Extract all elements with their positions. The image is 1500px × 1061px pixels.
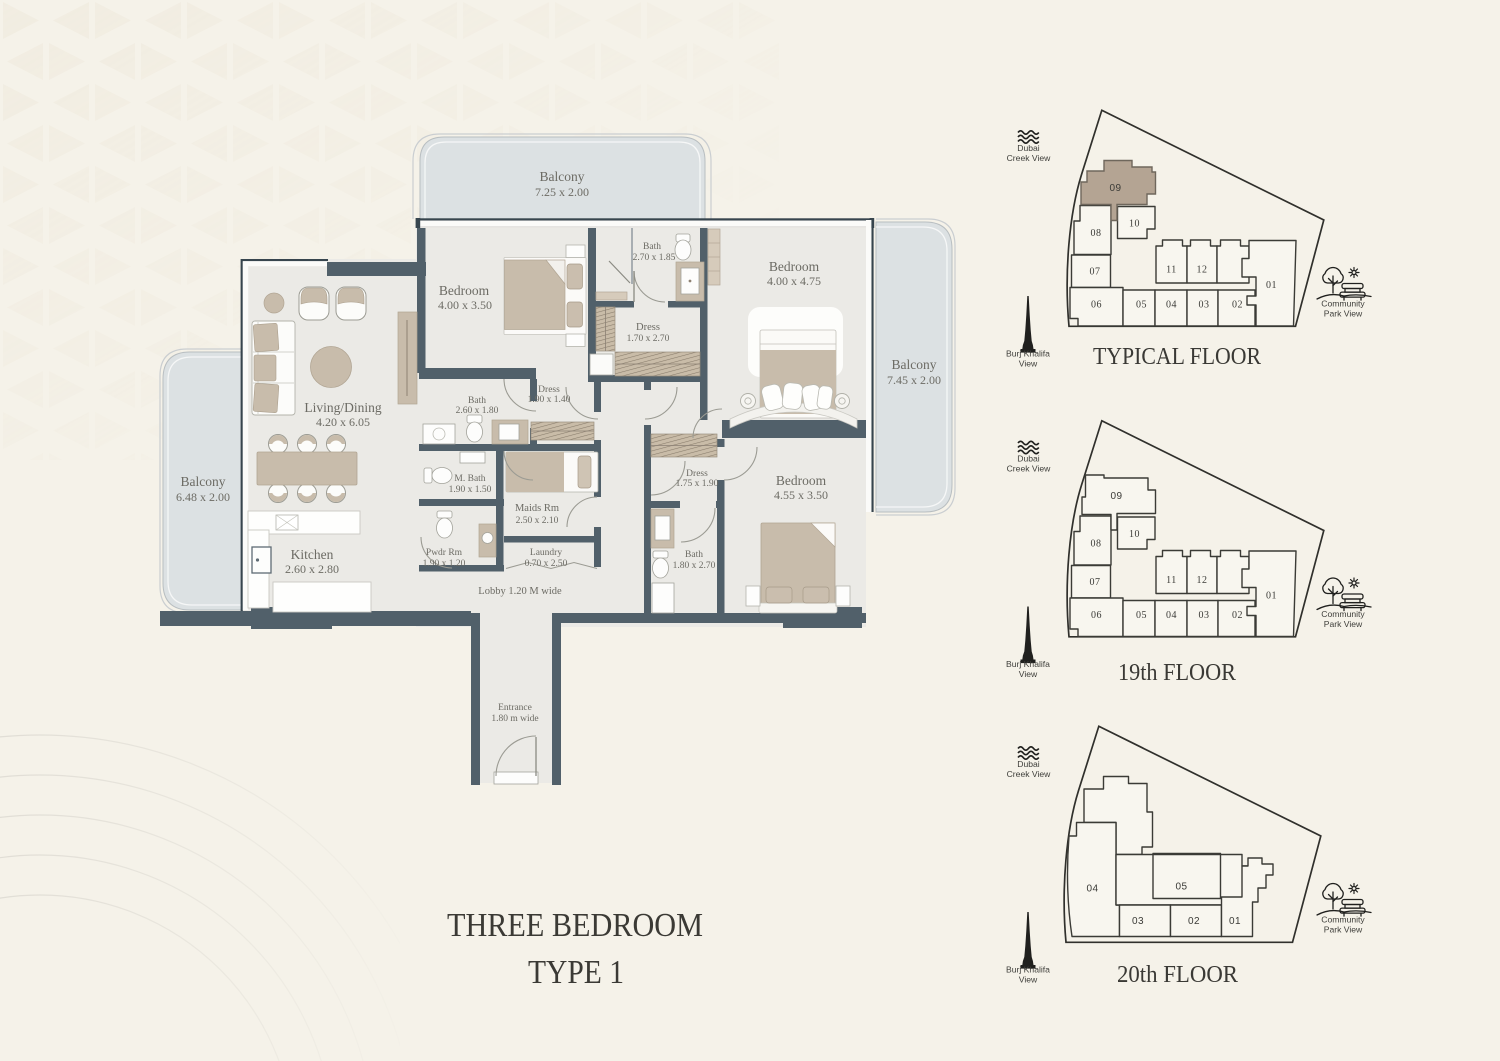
svg-text:Pwdr Rm: Pwdr Rm — [426, 548, 463, 558]
svg-text:1.90 x 1.50: 1.90 x 1.50 — [449, 485, 492, 495]
svg-text:02: 02 — [1188, 916, 1200, 927]
svg-text:1.80 x 2.70: 1.80 x 2.70 — [673, 561, 716, 571]
svg-text:2.60 x 1.80: 2.60 x 1.80 — [456, 406, 499, 416]
svg-text:04: 04 — [1086, 884, 1098, 895]
svg-text:7.25 x 2.00: 7.25 x 2.00 — [535, 185, 589, 199]
svg-text:1.80 m wide: 1.80 m wide — [491, 714, 538, 724]
svg-text:0.70 x 2.50: 0.70 x 2.50 — [525, 559, 568, 569]
svg-text:09: 09 — [1109, 183, 1121, 194]
svg-text:7.45 x 2.00: 7.45 x 2.00 — [887, 373, 941, 387]
svg-text:05: 05 — [1175, 882, 1187, 893]
svg-text:Balcony: Balcony — [540, 169, 585, 184]
svg-text:Dress: Dress — [538, 385, 560, 395]
svg-text:Bedroom: Bedroom — [439, 283, 490, 298]
svg-text:Lobby 1.20 M wide: Lobby 1.20 M wide — [478, 586, 562, 597]
svg-text:4.00 x 4.75: 4.00 x 4.75 — [767, 274, 821, 288]
svg-text:Living/Dining: Living/Dining — [304, 400, 381, 415]
svg-text:20th FLOOR: 20th FLOOR — [1117, 962, 1238, 988]
svg-text:4.20 x 6.05: 4.20 x 6.05 — [316, 415, 370, 429]
svg-text:01: 01 — [1229, 916, 1241, 927]
svg-text:TYPICAL FLOOR: TYPICAL FLOOR — [1093, 344, 1261, 370]
svg-text:1.75 x 1.90: 1.75 x 1.90 — [676, 479, 719, 489]
svg-text:Bath: Bath — [468, 396, 486, 406]
svg-text:TYPE 1: TYPE 1 — [528, 954, 624, 991]
svg-text:Bedroom: Bedroom — [769, 259, 820, 274]
svg-text:09: 09 — [1110, 491, 1122, 502]
svg-text:4.55 x 3.50: 4.55 x 3.50 — [774, 488, 828, 502]
svg-text:Dress: Dress — [686, 469, 708, 479]
svg-text:Laundry: Laundry — [530, 548, 562, 558]
svg-text:Dress: Dress — [636, 322, 660, 333]
svg-text:19th FLOOR: 19th FLOOR — [1118, 660, 1236, 686]
svg-text:Balcony: Balcony — [892, 357, 937, 372]
svg-text:2.50 x 2.10: 2.50 x 2.10 — [516, 516, 559, 526]
svg-text:Bath: Bath — [643, 242, 661, 252]
svg-text:2.60 x 2.80: 2.60 x 2.80 — [285, 562, 339, 576]
svg-text:2.70 x 1.85: 2.70 x 1.85 — [633, 253, 676, 263]
svg-text:03: 03 — [1132, 916, 1144, 927]
svg-text:Balcony: Balcony — [181, 474, 226, 489]
svg-text:THREE BEDROOM: THREE BEDROOM — [447, 907, 703, 944]
svg-text:4.00 x 3.50: 4.00 x 3.50 — [438, 298, 492, 312]
svg-text:1.90 x 1.20: 1.90 x 1.20 — [423, 559, 466, 569]
svg-text:Entrance: Entrance — [498, 703, 532, 713]
svg-text:Bath: Bath — [685, 550, 703, 560]
svg-text:6.48 x 2.00: 6.48 x 2.00 — [176, 490, 230, 504]
svg-text:Maids Rm: Maids Rm — [515, 503, 559, 514]
svg-text:1.70 x 2.70: 1.70 x 2.70 — [627, 334, 670, 344]
svg-text:1.90 x 1.40: 1.90 x 1.40 — [528, 395, 571, 405]
svg-text:M. Bath: M. Bath — [454, 474, 485, 484]
svg-text:Bedroom: Bedroom — [776, 473, 827, 488]
svg-text:Kitchen: Kitchen — [291, 547, 334, 562]
